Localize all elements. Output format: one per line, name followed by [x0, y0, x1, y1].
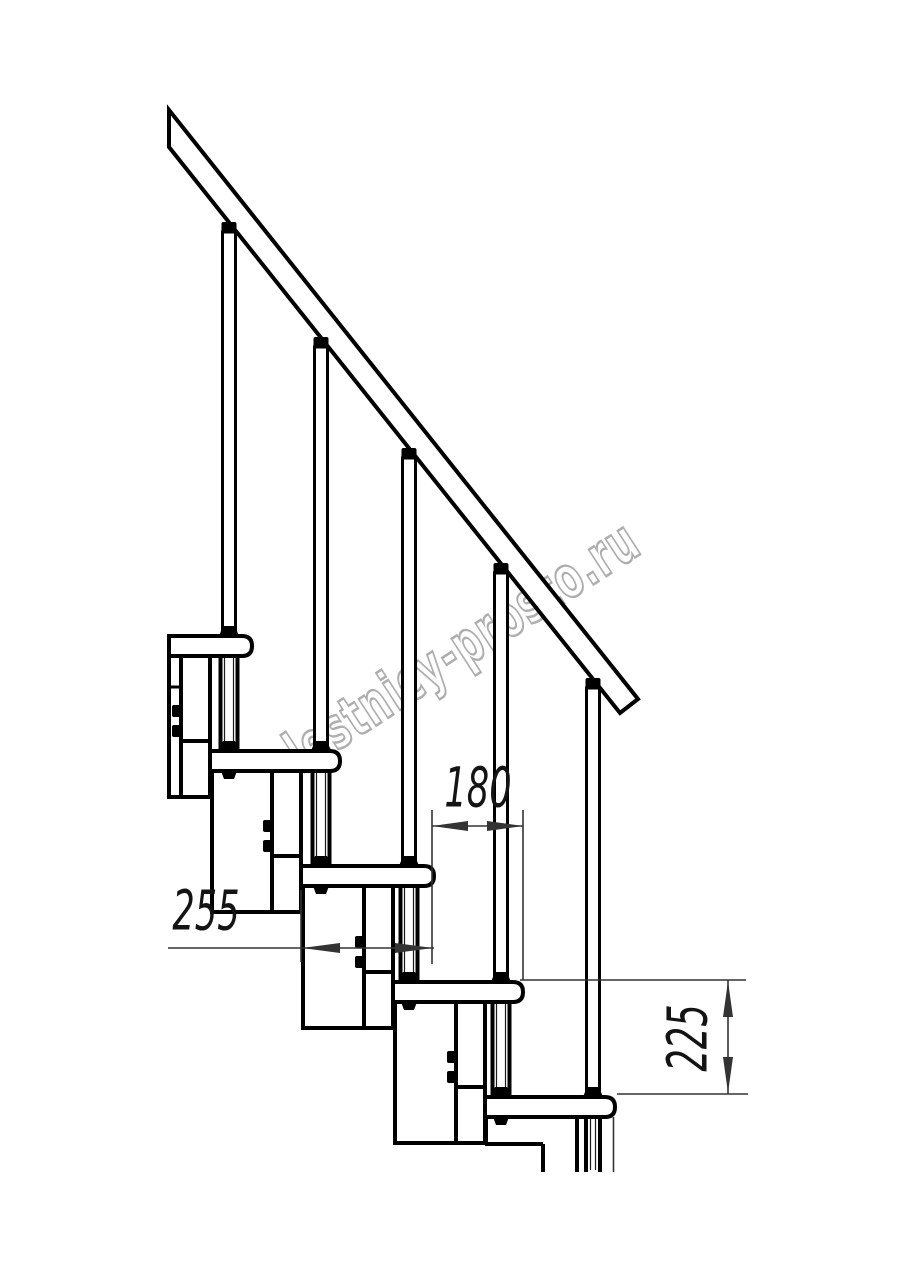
rail-connector-icon: [314, 337, 329, 348]
tread-2: [210, 751, 340, 771]
column-clip-icon: [172, 705, 181, 717]
column-clip-icon: [263, 840, 272, 852]
rail-connector-icon: [402, 448, 417, 459]
baluster-2: [315, 347, 328, 751]
column-clip-icon: [172, 725, 181, 737]
dimension-label-tread-depth: 255: [172, 884, 239, 939]
arrow-up-icon: [723, 981, 733, 1017]
spindle-tube-1: [221, 656, 238, 751]
tread-4: [393, 982, 523, 1002]
arrow-down-icon: [723, 1057, 733, 1093]
support-column-1: [169, 656, 210, 797]
baluster-3: [403, 458, 416, 866]
spindle-tube-3: [401, 886, 418, 982]
rail-connector-icon: [222, 222, 237, 233]
column-clip-icon: [447, 1071, 456, 1083]
arrow-left-icon: [432, 821, 468, 831]
dimension-label-step-run: 180: [444, 761, 511, 816]
column-clip-icon: [355, 936, 364, 948]
staircase-drawing: [0, 0, 914, 1280]
dimension-180: [432, 810, 523, 980]
baluster-5: [587, 688, 600, 1097]
bolt-icon: [493, 1117, 509, 1125]
spindle-tube-2: [313, 771, 330, 866]
drawing-canvas: lestnicy-prosto.ru: [0, 0, 914, 1280]
column-clip-icon: [447, 1051, 456, 1063]
rail-connector-icon: [494, 563, 509, 574]
baluster-1: [223, 232, 236, 636]
rail-connector-icon: [586, 678, 601, 689]
tread-3: [301, 866, 434, 886]
spindle-tube-4: [493, 1002, 510, 1097]
dimension-label-riser-height: 225: [661, 1004, 716, 1071]
tread-1: [169, 636, 252, 656]
support-column-3: [303, 886, 393, 1028]
support-column-4: [395, 1002, 485, 1143]
tread-5: [485, 1097, 615, 1117]
lower-module-clipped: [485, 1117, 614, 1172]
column-clip-icon: [355, 956, 364, 968]
column-clip-icon: [263, 820, 272, 832]
